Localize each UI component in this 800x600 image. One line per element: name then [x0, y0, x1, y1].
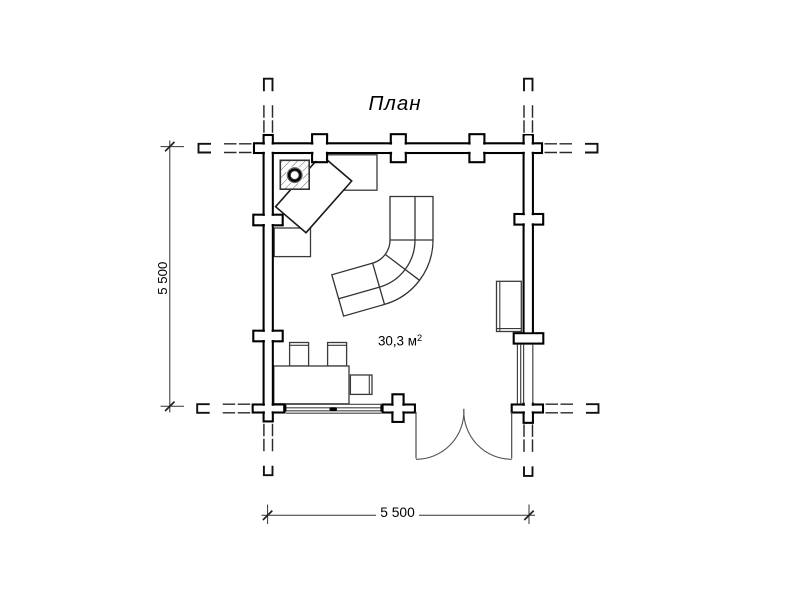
- svg-text:План: План: [368, 92, 421, 115]
- svg-text:5 500: 5 500: [155, 262, 170, 295]
- svg-text:30,3 м2: 30,3 м2: [378, 333, 422, 349]
- svg-text:5 500: 5 500: [380, 505, 415, 520]
